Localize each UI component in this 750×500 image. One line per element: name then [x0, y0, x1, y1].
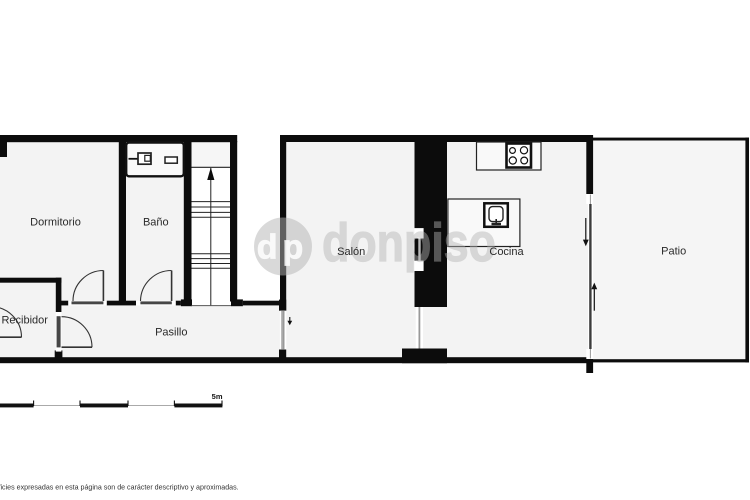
- svg-text:Recibidor: Recibidor: [1, 314, 48, 326]
- svg-text:Dormitorio: Dormitorio: [30, 217, 81, 229]
- svg-text:dp: dp: [257, 229, 309, 267]
- svg-text:ficies expresadas en esta pági: ficies expresadas en esta página son de …: [0, 484, 239, 492]
- svg-text:Baño: Baño: [143, 217, 169, 229]
- svg-text:5m: 5m: [212, 392, 223, 401]
- svg-text:donpiso: donpiso: [322, 213, 496, 273]
- svg-text:Cocina: Cocina: [489, 246, 524, 258]
- svg-text:Patio: Patio: [661, 246, 686, 258]
- svg-text:Salón: Salón: [337, 246, 365, 258]
- svg-text:Pasillo: Pasillo: [155, 327, 187, 339]
